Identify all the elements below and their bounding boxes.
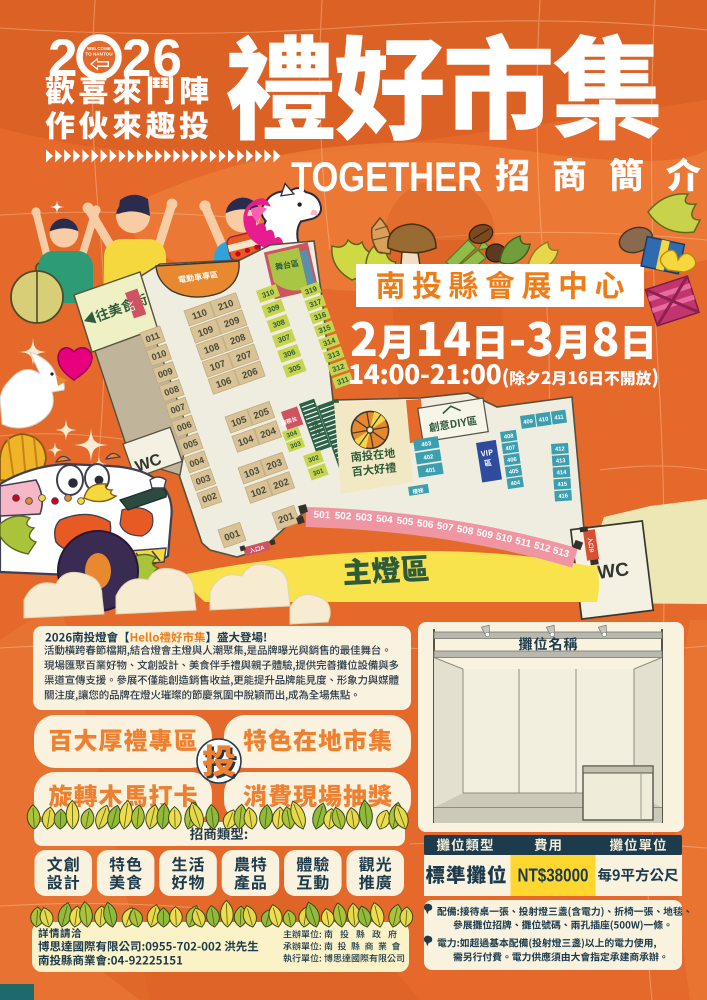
svg-text:504: 504 (376, 514, 394, 527)
svg-text:502: 502 (334, 511, 352, 523)
svg-text:412: 412 (555, 446, 565, 453)
svg-text:TO NANTOU: TO NANTOU (85, 52, 113, 57)
svg-text:416: 416 (558, 493, 569, 500)
svg-text:WELCOME: WELCOME (87, 46, 111, 51)
svg-text:WC: WC (596, 559, 630, 584)
svg-text:413: 413 (556, 458, 567, 465)
svg-text:NT$38000: NT$38000 (518, 866, 589, 886)
svg-text:414: 414 (557, 470, 568, 477)
svg-text:TOGETHER: TOGETHER (291, 153, 482, 200)
svg-text:506: 506 (416, 518, 434, 531)
svg-text:415: 415 (557, 482, 568, 489)
svg-text:503: 503 (355, 512, 373, 524)
svg-text:26: 26 (122, 29, 183, 88)
svg-text:505: 505 (396, 516, 414, 529)
svg-text:501: 501 (313, 510, 331, 522)
